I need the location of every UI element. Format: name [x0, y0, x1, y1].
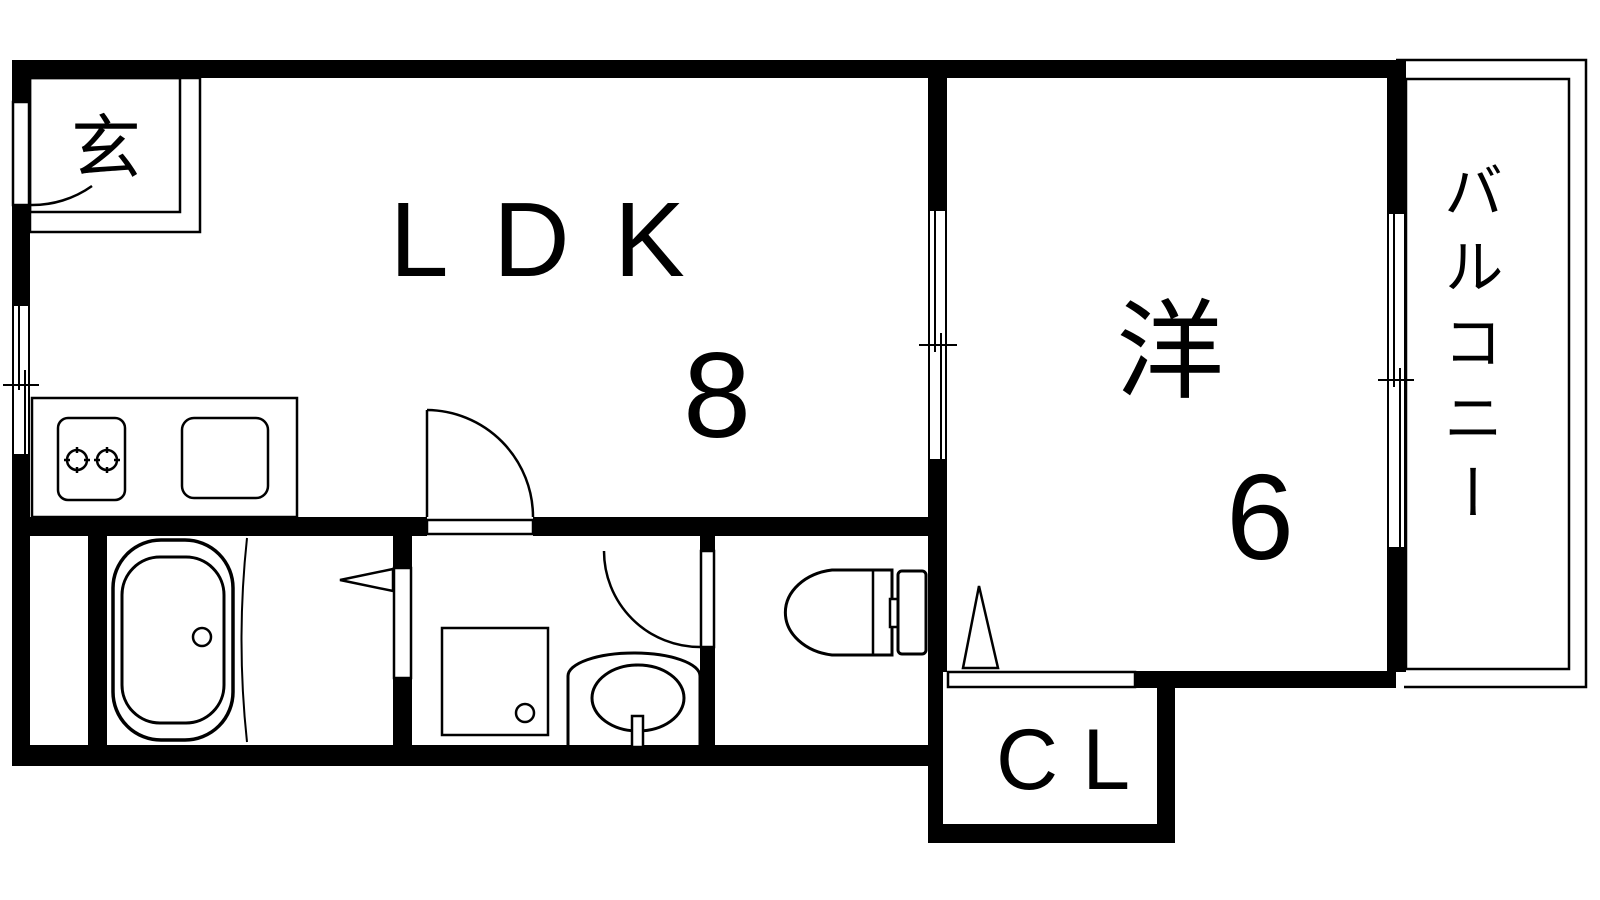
- bathtub-apron-line: [242, 538, 248, 742]
- washroom-toilet-door-panel: [701, 551, 714, 647]
- wall-left-upper: [12, 60, 30, 102]
- toilet-bowl: [785, 570, 892, 655]
- left-wall-window: [3, 305, 39, 455]
- wall-west-room-bottom: [1133, 671, 1396, 688]
- ldk-door-threshold: [427, 520, 533, 534]
- wall-bottom-main: [12, 745, 943, 766]
- west-balcony-window: [1378, 213, 1414, 548]
- western-room-size-label: 6: [1210, 462, 1310, 572]
- western-room-label: 洋: [1112, 294, 1228, 410]
- closet: [948, 586, 1135, 687]
- floor-plan-drawing: [0, 0, 1600, 900]
- toilet-tank: [898, 571, 926, 654]
- wall-closet-bottom: [928, 824, 1175, 843]
- kitchen: [32, 398, 297, 517]
- wall-left-lower: [12, 455, 30, 766]
- wall-bath-wash-upper: [393, 536, 412, 568]
- wall-ldk-west-lower: [928, 460, 947, 672]
- stove-burner-right-icon: [94, 447, 120, 473]
- entrance-door-panel: [13, 102, 29, 205]
- ldk-door-swing-arc: [427, 410, 533, 517]
- washroom: [442, 551, 714, 747]
- kitchen-sink: [182, 418, 268, 498]
- wall-closet-left: [928, 672, 943, 843]
- washbasin-tap-icon: [632, 716, 643, 747]
- washroom-toilet-door-swing-arc: [604, 551, 700, 647]
- closet-folding-door-icon: [963, 586, 998, 668]
- wall-top: [12, 60, 1406, 78]
- balcony-label: バルコニー: [1428, 160, 1498, 600]
- ldk-label: LDK: [340, 192, 735, 287]
- bathroom-door-panel: [394, 568, 411, 678]
- bathtub-drain-icon: [193, 628, 211, 646]
- ldk-west-sliding-door: [919, 210, 957, 460]
- wall-ldk-west-upper: [928, 78, 947, 210]
- wall-left-mid: [12, 205, 30, 305]
- entrance-door-swing-arc: [30, 186, 92, 205]
- bathroom-folding-door-icon: [340, 569, 393, 591]
- washing-machine-drain-icon: [516, 704, 534, 722]
- wall-wash-toilet-upper: [700, 536, 715, 551]
- closet-label: CL: [960, 712, 1166, 807]
- wall-balcony-upper: [1387, 78, 1406, 213]
- floor-plan: 玄 LDK 8 洋 6 CL バルコニー: [0, 0, 1600, 900]
- wall-balcony-lower: [1387, 548, 1406, 672]
- wall-wash-toilet-lower: [700, 647, 715, 745]
- wall-strip-top-right: [533, 517, 928, 536]
- toilet: [785, 570, 926, 655]
- wall-bath-wash-lower: [393, 678, 412, 745]
- ldk-door: [427, 410, 533, 534]
- closet-door-track: [948, 672, 1135, 687]
- wall-bathroom-left: [88, 536, 107, 745]
- ldk-size-label: 8: [667, 340, 767, 450]
- bathtub-inner: [122, 557, 224, 723]
- stove-burner-left-icon: [64, 447, 90, 473]
- wall-strip-top-left: [30, 517, 427, 536]
- entrance-label: 玄: [70, 112, 142, 184]
- bathroom: [113, 538, 411, 742]
